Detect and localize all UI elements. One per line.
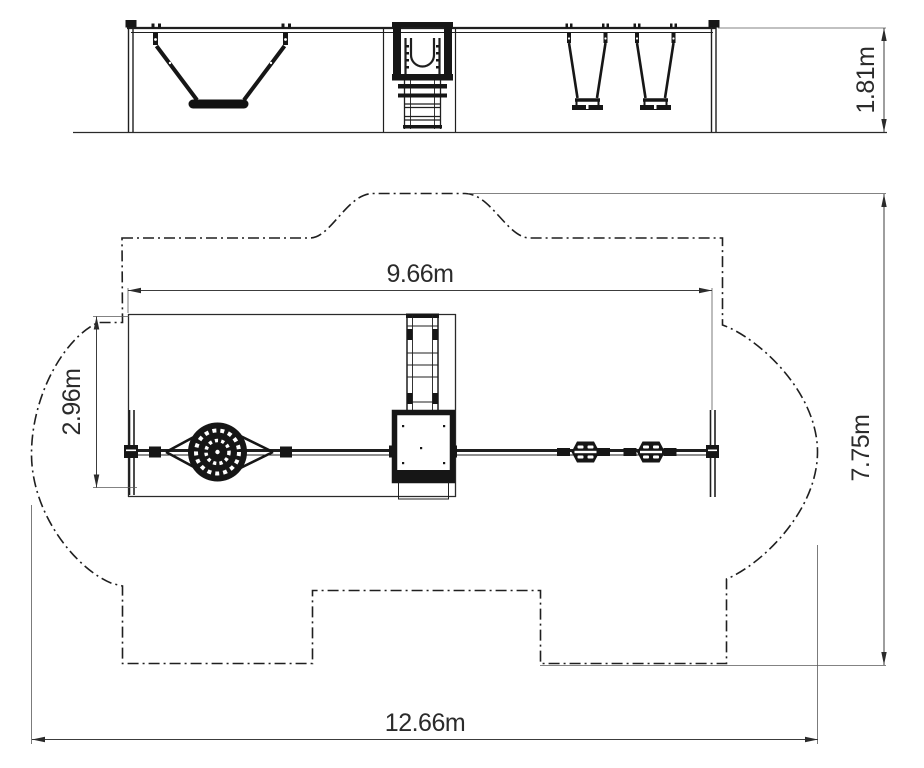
- tower-deck: [392, 74, 453, 81]
- plan-swing-seat-1: [557, 442, 610, 463]
- technical-drawing: 1.81m: [0, 0, 924, 768]
- elevation-view: 1.81m: [73, 20, 887, 133]
- basket-rope-left: [157, 46, 198, 100]
- plan-left-post: [124, 410, 138, 495]
- elevation-left-post: [126, 20, 137, 132]
- dim-label-frame-span: 9.66m: [387, 260, 454, 288]
- slide-chute-profile: [406, 38, 440, 75]
- plan-view: 9.66m 2.96m 7.75m 12.66m: [32, 194, 887, 745]
- plan-slide-chute: [406, 314, 439, 425]
- plan-swing-seat-2: [624, 442, 677, 463]
- dim-label-frame-depth: 2.96m: [58, 369, 86, 436]
- dim-label-zone-width: 12.66m: [385, 709, 465, 737]
- elevation-swing-1: [566, 24, 610, 110]
- elevation-right-post: [709, 20, 720, 132]
- dimension-overall-height: 1.81m: [718, 28, 887, 132]
- dimension-zone-width: 12.66m: [32, 505, 819, 744]
- basket-rope-right: [244, 46, 285, 100]
- elevation-beam: [127, 28, 716, 33]
- dim-label-zone-depth: 7.75m: [847, 415, 875, 482]
- elevation-basket-swing: [152, 24, 292, 105]
- drawing-canvas: 1.81m: [0, 0, 924, 768]
- plan-right-post: [706, 410, 719, 497]
- plan-climbing-tower: [389, 314, 457, 500]
- elevation-climbing-tower: [384, 22, 456, 132]
- tower-ladder: [398, 81, 447, 130]
- dimension-zone-depth: 7.75m: [468, 194, 887, 666]
- dimension-frame-depth: 2.96m: [58, 317, 137, 488]
- elevation-swing-2: [634, 24, 678, 110]
- dim-label-overall-height: 1.81m: [852, 47, 880, 114]
